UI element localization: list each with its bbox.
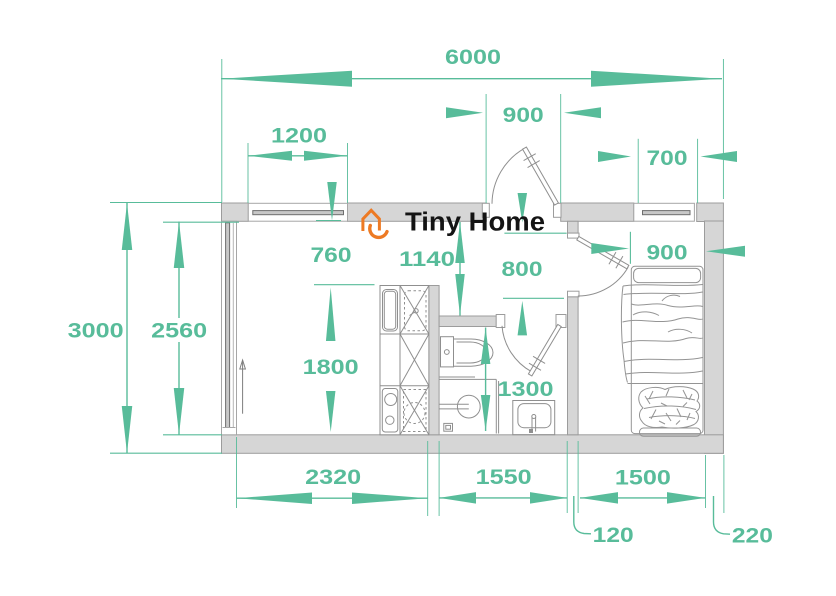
svg-text:900: 900 bbox=[647, 241, 688, 265]
svg-text:900: 900 bbox=[503, 103, 544, 127]
svg-text:1200: 1200 bbox=[271, 123, 327, 147]
svg-text:760: 760 bbox=[311, 243, 352, 267]
svg-text:220: 220 bbox=[732, 524, 773, 548]
svg-text:2320: 2320 bbox=[305, 465, 361, 489]
svg-text:6000: 6000 bbox=[445, 45, 501, 69]
svg-text:2560: 2560 bbox=[151, 319, 207, 343]
svg-text:1550: 1550 bbox=[476, 465, 532, 489]
svg-text:1140: 1140 bbox=[399, 247, 455, 271]
svg-text:700: 700 bbox=[647, 146, 688, 170]
svg-text:1300: 1300 bbox=[498, 377, 554, 401]
svg-text:800: 800 bbox=[502, 257, 543, 281]
svg-text:120: 120 bbox=[593, 523, 634, 547]
svg-text:3000: 3000 bbox=[68, 319, 124, 343]
svg-text:1500: 1500 bbox=[615, 465, 671, 489]
svg-text:Tiny Home: Tiny Home bbox=[405, 209, 545, 237]
svg-text:1800: 1800 bbox=[303, 355, 359, 379]
